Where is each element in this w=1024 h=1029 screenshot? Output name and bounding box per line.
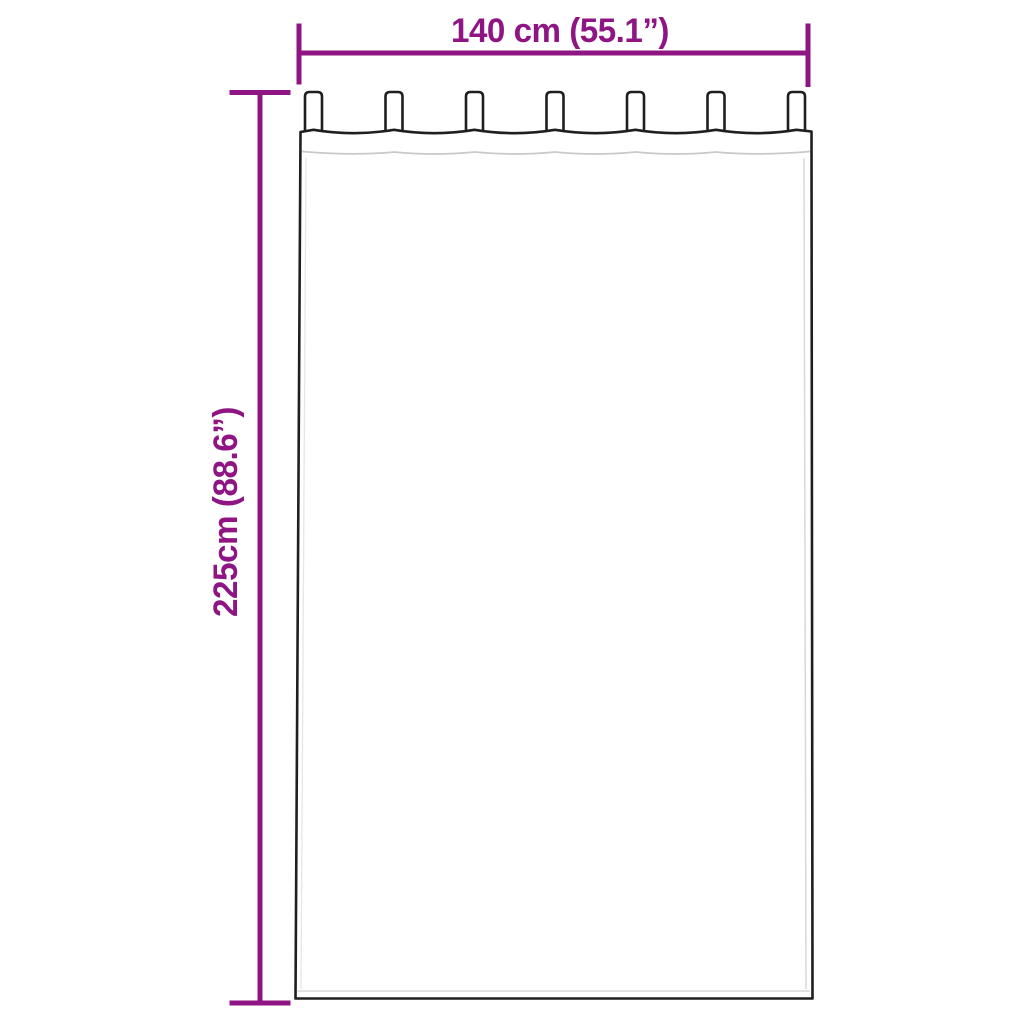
- height-dimension-label: 225cm (88.6”): [207, 407, 245, 617]
- curtain-dimension-diagram: 140 cm (55.1”) 225cm (88.6”): [0, 0, 1024, 1024]
- curtain-panel: [296, 130, 813, 999]
- curtain-drawing: [296, 92, 813, 999]
- width-dimension-label: 140 cm (55.1”): [451, 12, 669, 50]
- diagram-canvas: 140 cm (55.1”) 225cm (88.6”): [0, 0, 1024, 1024]
